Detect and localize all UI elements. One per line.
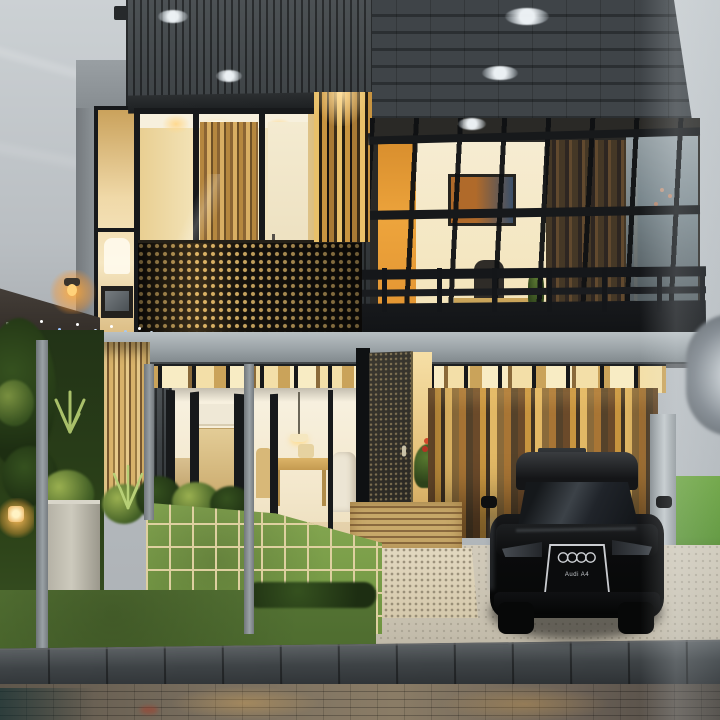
side-return-wall bbox=[76, 60, 130, 112]
agave-plant bbox=[50, 374, 90, 434]
canopy-post-2 bbox=[144, 364, 154, 520]
glass-reflection-right bbox=[640, 0, 720, 720]
tv-screen bbox=[105, 291, 129, 311]
car-side-glint bbox=[488, 518, 494, 590]
ceiling-light-glare-4 bbox=[482, 66, 518, 80]
canopy-post-3 bbox=[244, 364, 254, 634]
dining-chair-back bbox=[298, 444, 314, 458]
bay-downlight-glow-1 bbox=[162, 114, 190, 134]
bollard-lamp bbox=[8, 506, 24, 522]
street-dark-corner bbox=[0, 688, 95, 720]
facade-vent bbox=[114, 6, 128, 20]
ceiling-light-glare-3 bbox=[505, 8, 549, 25]
planter-box bbox=[48, 500, 100, 602]
interior-sofa bbox=[104, 238, 130, 274]
perforated-balcony-screen bbox=[138, 240, 362, 343]
ceiling-light-glare-1 bbox=[158, 10, 188, 23]
car-wheel-left bbox=[498, 602, 534, 634]
car-windshield bbox=[510, 482, 644, 526]
lawn-hedge bbox=[246, 582, 376, 608]
ceiling-light-glare-2 bbox=[216, 70, 242, 82]
slat-downlight-glow bbox=[316, 92, 366, 126]
street-light-reflection-2 bbox=[440, 686, 610, 720]
audi-rings-icon bbox=[557, 551, 597, 564]
pendant-cord bbox=[298, 392, 300, 436]
ceiling-light-glare-5 bbox=[458, 118, 486, 130]
dining-table bbox=[272, 458, 332, 470]
railing-posts bbox=[382, 268, 387, 312]
garden-lamp-bulb bbox=[67, 284, 77, 296]
car-mirror-left bbox=[481, 496, 497, 508]
tall-window-mullion bbox=[98, 228, 134, 232]
street-pavers bbox=[0, 684, 720, 720]
pendant-shade bbox=[290, 434, 308, 442]
table-leg-right bbox=[322, 470, 326, 506]
street-red-glint bbox=[140, 706, 158, 714]
street-light-reflection-1 bbox=[170, 686, 320, 720]
gold-slat-panel bbox=[314, 92, 372, 242]
grille-badge-text: Audi A4 bbox=[546, 572, 608, 578]
canopy-post-1 bbox=[36, 340, 48, 654]
car-grille-chrome: Audi A4 bbox=[544, 544, 610, 594]
car-grille: Audi A4 bbox=[546, 546, 608, 592]
entry-door-handle bbox=[402, 445, 406, 456]
interior-tv bbox=[101, 286, 133, 318]
photo-scene: Audi A4 bbox=[0, 0, 720, 720]
stone-path bbox=[372, 548, 478, 618]
